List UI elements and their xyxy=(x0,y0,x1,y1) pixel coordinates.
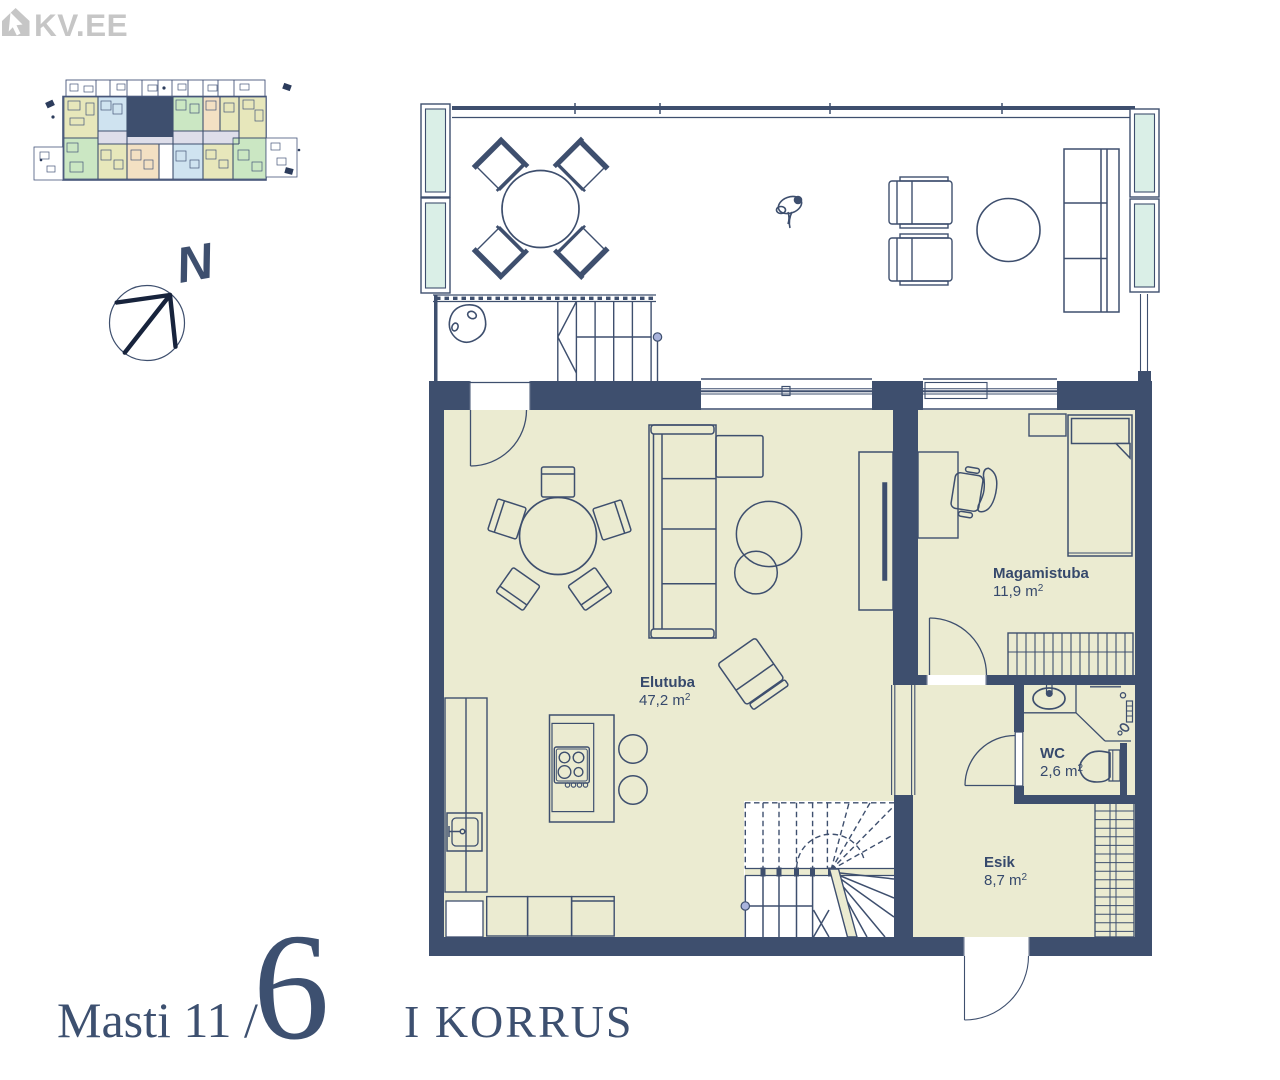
svg-text:Masti 11 /: Masti 11 / xyxy=(57,992,258,1048)
svg-text:Esik: Esik xyxy=(984,854,1016,871)
svg-text:N: N xyxy=(172,232,218,294)
svg-text:Elutuba: Elutuba xyxy=(640,674,696,691)
svg-text:Magamistuba: Magamistuba xyxy=(993,565,1090,582)
svg-text:WC: WC xyxy=(1040,745,1065,762)
svg-text:8,7 m2: 8,7 m2 xyxy=(984,872,1028,889)
svg-text:6: 6 xyxy=(253,903,330,1072)
svg-text:2,6 m2: 2,6 m2 xyxy=(1040,763,1084,780)
svg-text:KV.EE: KV.EE xyxy=(34,7,128,43)
svg-text:47,2 m2: 47,2 m2 xyxy=(639,692,691,709)
svg-text:I KORRUS: I KORRUS xyxy=(404,996,633,1047)
svg-text:11,9 m2: 11,9 m2 xyxy=(993,583,1044,600)
